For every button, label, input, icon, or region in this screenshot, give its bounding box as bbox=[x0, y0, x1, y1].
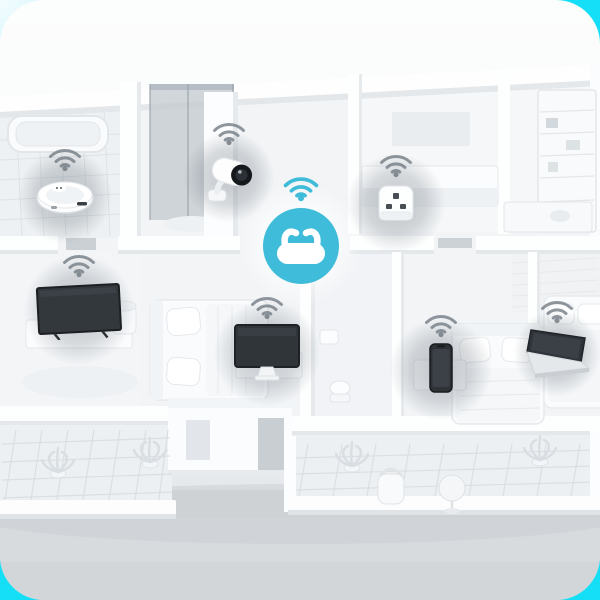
kitchen-counter bbox=[504, 202, 592, 232]
lounge-chair bbox=[378, 469, 404, 504]
wall-tv-panel bbox=[392, 112, 470, 146]
nightstand bbox=[414, 360, 466, 390]
laundry-basket bbox=[112, 301, 136, 334]
tv-cabinet bbox=[362, 166, 498, 206]
illustration-stage bbox=[0, 0, 600, 600]
bed bbox=[544, 296, 600, 408]
bed bbox=[150, 300, 268, 400]
floorplan-card bbox=[0, 0, 600, 600]
bathtub bbox=[8, 116, 108, 152]
floor-plan bbox=[0, 0, 600, 600]
rug bbox=[22, 366, 138, 398]
bottom-center-room bbox=[168, 398, 292, 476]
dresser bbox=[236, 352, 302, 378]
